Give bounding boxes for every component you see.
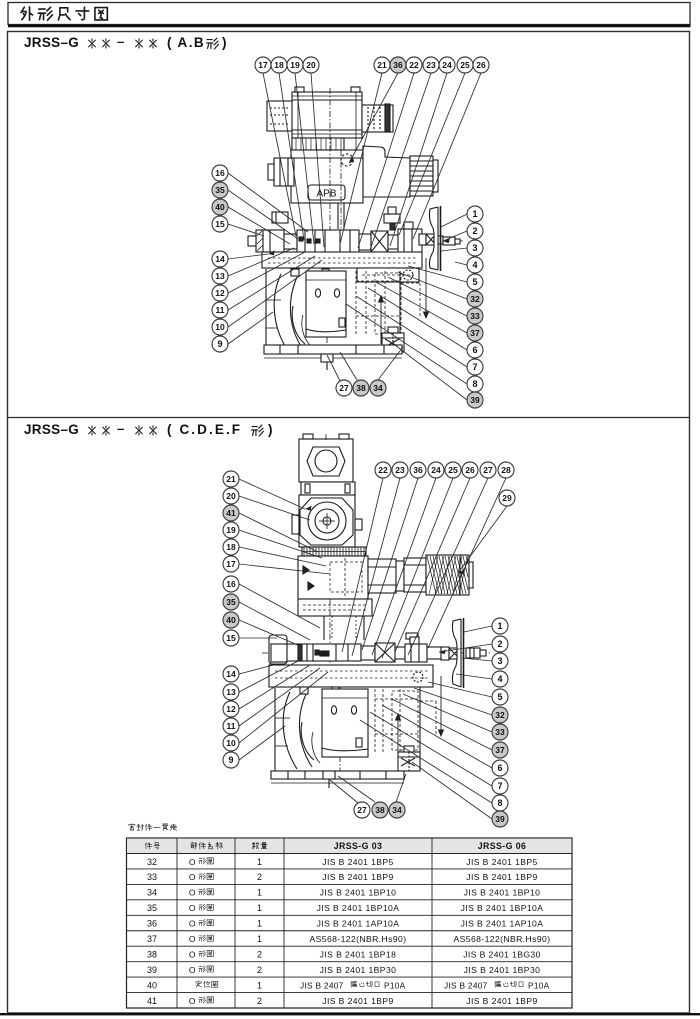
svg-text:12: 12 [215, 288, 225, 298]
svg-text:26: 26 [476, 60, 486, 70]
svg-text:13: 13 [226, 687, 236, 697]
svg-text:27: 27 [483, 465, 493, 475]
svg-text:25: 25 [460, 60, 470, 70]
svg-text:33: 33 [470, 311, 480, 321]
svg-text:37: 37 [147, 934, 157, 944]
svg-text:JRSS–G: JRSS–G [24, 422, 79, 437]
svg-text:12: 12 [226, 704, 236, 714]
svg-text:O: O [189, 965, 196, 975]
svg-text:2: 2 [257, 950, 262, 960]
svg-text:36: 36 [413, 465, 423, 475]
svg-text:7: 7 [497, 781, 502, 791]
svg-text:40: 40 [215, 202, 225, 212]
svg-text:34: 34 [392, 805, 402, 815]
svg-text:34: 34 [373, 383, 383, 393]
svg-text:13: 13 [215, 271, 225, 281]
svg-text:27: 27 [357, 805, 367, 815]
svg-text:JIS B 2401 1BP9: JIS B 2401 1BP9 [322, 872, 393, 882]
svg-text:26: 26 [465, 465, 475, 475]
svg-text:AS568-122(NBR.Hs90): AS568-122(NBR.Hs90) [454, 934, 551, 944]
svg-text:11: 11 [227, 721, 236, 731]
svg-text:JIS B 2401 1BP10: JIS B 2401 1BP10 [464, 888, 541, 898]
svg-text:20: 20 [226, 491, 236, 501]
svg-text:2: 2 [257, 996, 262, 1006]
svg-text:O: O [189, 950, 196, 960]
svg-text:33: 33 [495, 727, 505, 737]
svg-text:39: 39 [495, 814, 505, 824]
svg-text:20: 20 [306, 60, 316, 70]
svg-text:5: 5 [472, 277, 477, 287]
svg-text:–: – [117, 421, 124, 436]
svg-text:JIS B 2401 1BP18: JIS B 2401 1BP18 [320, 950, 397, 960]
svg-text:25: 25 [448, 465, 458, 475]
svg-text:28: 28 [501, 465, 511, 475]
svg-text:23: 23 [395, 465, 405, 475]
svg-text:JRSS-G 06: JRSS-G 06 [478, 841, 527, 851]
svg-text:JIS B 2401 1BP10A: JIS B 2401 1BP10A [317, 903, 400, 913]
svg-text:35: 35 [147, 903, 157, 913]
svg-text:JIS B 2401 1BP9: JIS B 2401 1BP9 [466, 872, 537, 882]
svg-text:7: 7 [472, 362, 477, 372]
svg-text:O: O [189, 888, 196, 898]
svg-text:O: O [189, 919, 196, 929]
svg-text:JRSS–G: JRSS–G [24, 35, 79, 50]
svg-text:19: 19 [226, 525, 236, 535]
svg-text:AS568-122(NBR.Hs90): AS568-122(NBR.Hs90) [310, 934, 407, 944]
svg-text:14: 14 [215, 254, 225, 264]
svg-text:( A.B: ( A.B [167, 35, 205, 50]
svg-text:10: 10 [226, 738, 236, 748]
svg-text:1: 1 [257, 980, 262, 990]
svg-text:5: 5 [497, 692, 502, 702]
svg-text:9: 9 [217, 339, 222, 349]
svg-text:33: 33 [147, 872, 157, 882]
svg-text:4: 4 [497, 674, 502, 684]
svg-text:1: 1 [257, 919, 262, 929]
svg-text:23: 23 [426, 60, 436, 70]
svg-text:P10A: P10A [384, 980, 406, 990]
svg-text:29: 29 [502, 493, 512, 503]
svg-text:32: 32 [470, 294, 480, 304]
svg-text:32: 32 [147, 857, 157, 867]
svg-text:41: 41 [226, 508, 236, 518]
svg-text:JIS B 2401 1BP9: JIS B 2401 1BP9 [466, 996, 537, 1006]
svg-text:39: 39 [470, 395, 480, 405]
svg-text:17: 17 [226, 559, 236, 569]
svg-text:2: 2 [497, 639, 502, 649]
svg-text:15: 15 [215, 219, 225, 229]
svg-text:18: 18 [226, 542, 236, 552]
svg-text:37: 37 [495, 745, 505, 755]
svg-text:35: 35 [226, 597, 236, 607]
svg-text:1: 1 [472, 209, 477, 219]
svg-text:38: 38 [375, 805, 385, 815]
svg-text:36: 36 [147, 919, 157, 929]
svg-text:15: 15 [226, 633, 236, 643]
svg-text:JIS B 2401 1BP5: JIS B 2401 1BP5 [322, 857, 393, 867]
svg-text:16: 16 [215, 168, 225, 178]
svg-text:JIS B 2401 1BP10A: JIS B 2401 1BP10A [461, 903, 544, 913]
svg-text:21: 21 [377, 60, 387, 70]
svg-text:2: 2 [472, 226, 477, 236]
svg-text:38: 38 [147, 950, 157, 960]
svg-text:17: 17 [258, 60, 268, 70]
svg-text:1: 1 [497, 621, 502, 631]
svg-text:2: 2 [257, 965, 262, 975]
svg-text:1: 1 [257, 857, 262, 867]
svg-text:10: 10 [215, 322, 225, 332]
svg-text:40: 40 [147, 980, 157, 990]
svg-text:22: 22 [378, 465, 388, 475]
svg-text:3: 3 [497, 656, 502, 666]
svg-text:22: 22 [409, 60, 419, 70]
svg-text:JIS B 2401 1BP10: JIS B 2401 1BP10 [320, 888, 397, 898]
svg-text:JIS B 2401 1BP9: JIS B 2401 1BP9 [322, 996, 393, 1006]
svg-text:( C.D.E.F: ( C.D.E.F [167, 422, 242, 437]
svg-text:41: 41 [147, 996, 157, 1006]
svg-text:–: – [117, 34, 124, 49]
svg-text:36: 36 [393, 60, 403, 70]
svg-text:1: 1 [257, 888, 262, 898]
svg-text:4: 4 [472, 260, 477, 270]
svg-text:24: 24 [442, 60, 452, 70]
svg-text:O: O [189, 934, 196, 944]
svg-text:40: 40 [226, 615, 236, 625]
svg-text:): ) [222, 35, 227, 50]
svg-text:34: 34 [147, 888, 157, 898]
svg-text:JIS B 2401 1BP30: JIS B 2401 1BP30 [320, 965, 397, 975]
svg-text:32: 32 [495, 710, 505, 720]
svg-text:6: 6 [497, 763, 502, 773]
svg-text:35: 35 [215, 185, 225, 195]
svg-text:11: 11 [216, 305, 225, 315]
svg-text:6: 6 [472, 345, 477, 355]
svg-text:JIS B 2401 1BG30: JIS B 2401 1BG30 [463, 950, 541, 960]
svg-text:9: 9 [228, 755, 233, 765]
svg-text:JIS B 2401 1AP10A: JIS B 2401 1AP10A [317, 919, 400, 929]
svg-text:P10A: P10A [528, 980, 550, 990]
svg-text:37: 37 [470, 328, 480, 338]
svg-text:38: 38 [356, 383, 366, 393]
svg-text:18: 18 [274, 60, 284, 70]
svg-text:JIS B 2401 1BP5: JIS B 2401 1BP5 [466, 857, 537, 867]
svg-text:JIS B 2407: JIS B 2407 [300, 980, 344, 990]
svg-text:8: 8 [497, 798, 502, 808]
svg-text:O: O [189, 996, 196, 1006]
svg-text:39: 39 [147, 965, 157, 975]
svg-text:O: O [189, 903, 196, 913]
svg-text:1: 1 [257, 903, 262, 913]
svg-text:3: 3 [472, 243, 477, 253]
svg-text:19: 19 [290, 60, 300, 70]
svg-text:O: O [189, 857, 196, 867]
svg-text:21: 21 [226, 474, 236, 484]
svg-text:JIS B 2401 1AP10A: JIS B 2401 1AP10A [461, 919, 544, 929]
svg-text:JIS B 2407: JIS B 2407 [444, 980, 488, 990]
svg-text:1: 1 [257, 934, 262, 944]
svg-text:24: 24 [431, 465, 441, 475]
svg-text:JIS B 2401 1BP30: JIS B 2401 1BP30 [464, 965, 541, 975]
svg-text:2: 2 [257, 872, 262, 882]
svg-text:O: O [189, 872, 196, 882]
svg-text:JRSS-G 03: JRSS-G 03 [334, 841, 383, 851]
svg-text:16: 16 [226, 579, 236, 589]
svg-text:8: 8 [472, 379, 477, 389]
svg-text:): ) [268, 422, 273, 437]
svg-text:14: 14 [226, 669, 236, 679]
svg-text:27: 27 [339, 383, 349, 393]
